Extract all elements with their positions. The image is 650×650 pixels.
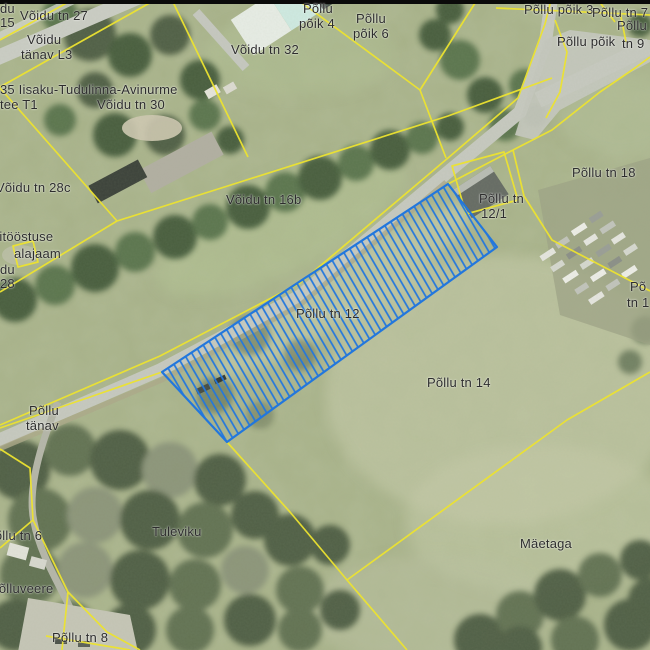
aerial-map-canvas — [0, 0, 650, 650]
map-viewport[interactable]: du15Võidu tn 27Võidutänav L335 Iisaku-Tu… — [0, 0, 650, 650]
top-edge-bar — [0, 0, 650, 4]
